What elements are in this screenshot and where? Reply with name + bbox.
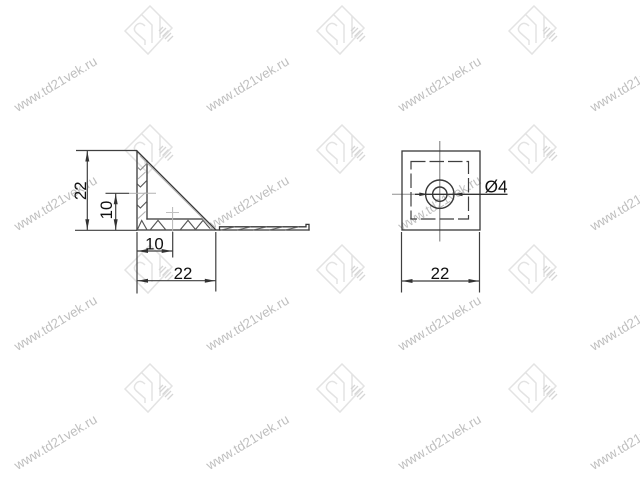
svg-text:22: 22 [71, 181, 90, 200]
svg-text:10: 10 [145, 234, 164, 253]
svg-text:22: 22 [174, 264, 193, 283]
svg-text:Ø4: Ø4 [485, 176, 508, 196]
svg-text:10: 10 [97, 201, 116, 220]
svg-text:22: 22 [431, 264, 450, 283]
